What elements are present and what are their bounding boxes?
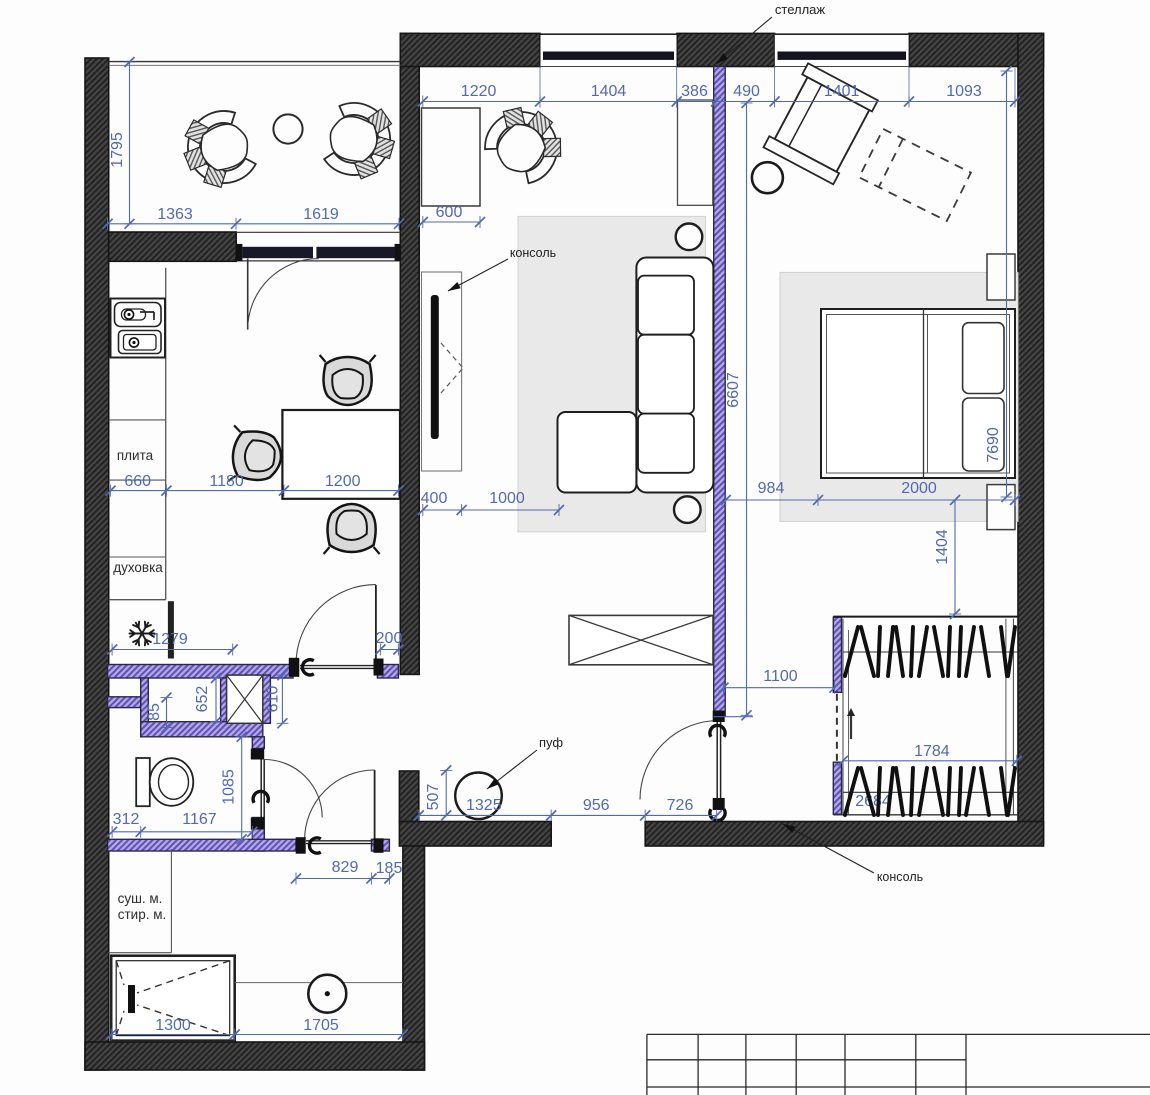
svg-text:суш. м.: суш. м. <box>118 891 163 906</box>
svg-text:1085: 1085 <box>221 769 238 805</box>
svg-text:507: 507 <box>425 784 442 811</box>
svg-text:1363: 1363 <box>157 206 193 223</box>
svg-text:1795: 1795 <box>109 132 126 168</box>
svg-text:1404: 1404 <box>934 529 951 565</box>
svg-text:85: 85 <box>146 703 163 721</box>
svg-text:1784: 1784 <box>914 743 950 760</box>
svg-text:1279: 1279 <box>152 631 188 648</box>
svg-text:1180: 1180 <box>209 473 244 490</box>
svg-text:консоль: консоль <box>510 246 556 260</box>
svg-text:1093: 1093 <box>946 83 982 100</box>
svg-text:660: 660 <box>124 473 151 490</box>
svg-text:6607: 6607 <box>725 372 742 408</box>
svg-text:1220: 1220 <box>461 83 497 100</box>
svg-text:1167: 1167 <box>182 811 217 828</box>
svg-text:312: 312 <box>113 811 140 828</box>
svg-text:600: 600 <box>436 204 463 221</box>
svg-text:1000: 1000 <box>489 490 525 507</box>
svg-text:200: 200 <box>376 630 403 647</box>
svg-text:984: 984 <box>758 480 785 497</box>
svg-text:стеллаж: стеллаж <box>775 2 826 17</box>
svg-text:1619: 1619 <box>303 206 339 223</box>
svg-text:консоль: консоль <box>877 870 923 884</box>
svg-text:386: 386 <box>681 83 708 100</box>
svg-text:829: 829 <box>332 859 359 876</box>
svg-text:400: 400 <box>421 490 448 507</box>
svg-text:1325: 1325 <box>466 797 502 814</box>
svg-text:плита: плита <box>117 448 154 463</box>
svg-text:1705: 1705 <box>303 1017 339 1034</box>
svg-text:7690: 7690 <box>985 427 1002 463</box>
svg-text:1401: 1401 <box>824 83 860 100</box>
svg-text:1100: 1100 <box>763 668 798 685</box>
svg-text:956: 956 <box>583 797 610 814</box>
svg-text:490: 490 <box>733 83 760 100</box>
svg-text:2000: 2000 <box>901 480 937 497</box>
svg-text:1200: 1200 <box>325 473 361 490</box>
svg-text:726: 726 <box>667 797 694 814</box>
svg-text:духовка: духовка <box>113 560 163 575</box>
svg-text:стир. м.: стир. м. <box>118 907 167 922</box>
svg-text:185: 185 <box>376 860 403 877</box>
svg-text:610: 610 <box>265 686 282 713</box>
svg-text:1300: 1300 <box>155 1017 191 1034</box>
svg-text:652: 652 <box>194 686 211 713</box>
svg-text:пуф: пуф <box>539 735 563 750</box>
svg-text:1404: 1404 <box>591 83 627 100</box>
